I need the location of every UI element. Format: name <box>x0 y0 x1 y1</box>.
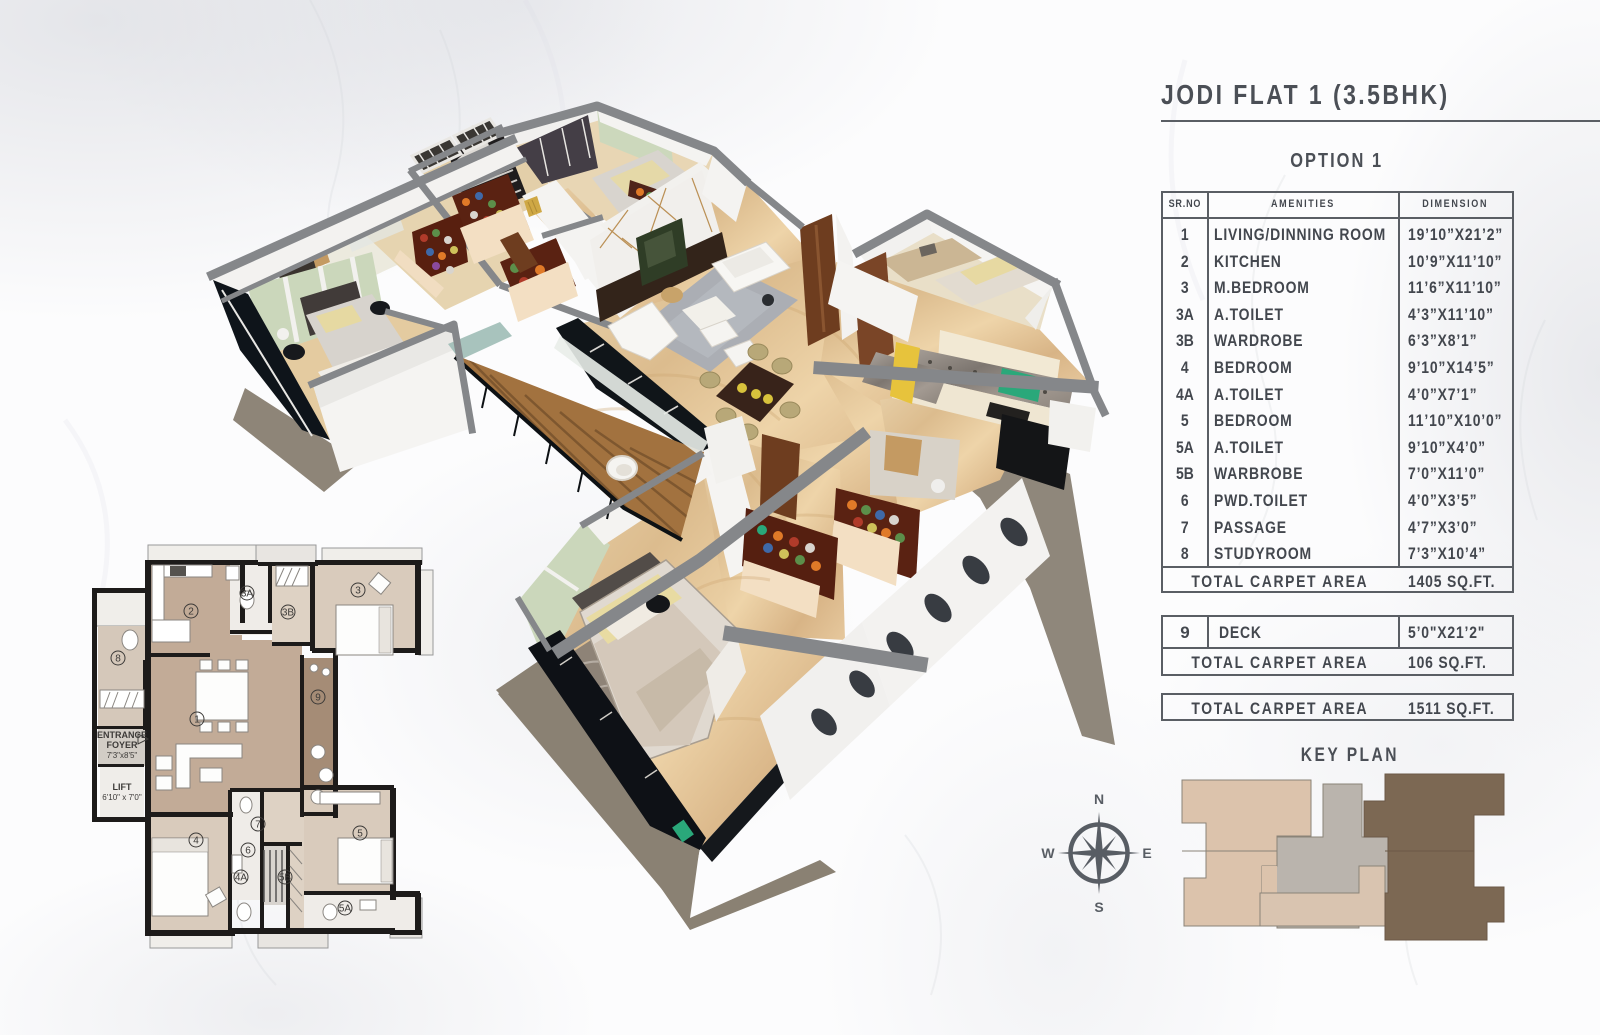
svg-text:5A: 5A <box>339 904 352 915</box>
svg-text:9: 9 <box>315 693 321 704</box>
svg-text:6'10" x 7'0": 6'10" x 7'0" <box>102 793 142 802</box>
svg-text:5: 5 <box>357 829 363 840</box>
svg-text:FOYER: FOYER <box>106 740 138 750</box>
svg-text:7: 7 <box>255 820 261 831</box>
svg-text:6: 6 <box>245 846 251 857</box>
svg-text:3A: 3A <box>241 589 254 600</box>
svg-text:3: 3 <box>355 586 361 597</box>
svg-text:8: 8 <box>115 654 121 665</box>
svg-text:3B: 3B <box>282 608 295 619</box>
svg-text:1: 1 <box>194 715 200 726</box>
svg-text:4: 4 <box>193 836 199 847</box>
svg-text:2: 2 <box>188 607 194 618</box>
svg-text:5B: 5B <box>279 873 292 884</box>
svg-text:4A: 4A <box>235 873 248 884</box>
svg-text:LIFT: LIFT <box>113 782 132 792</box>
svg-text:7'3"x8'5": 7'3"x8'5" <box>107 751 138 760</box>
svg-text:E: E <box>1142 845 1151 861</box>
